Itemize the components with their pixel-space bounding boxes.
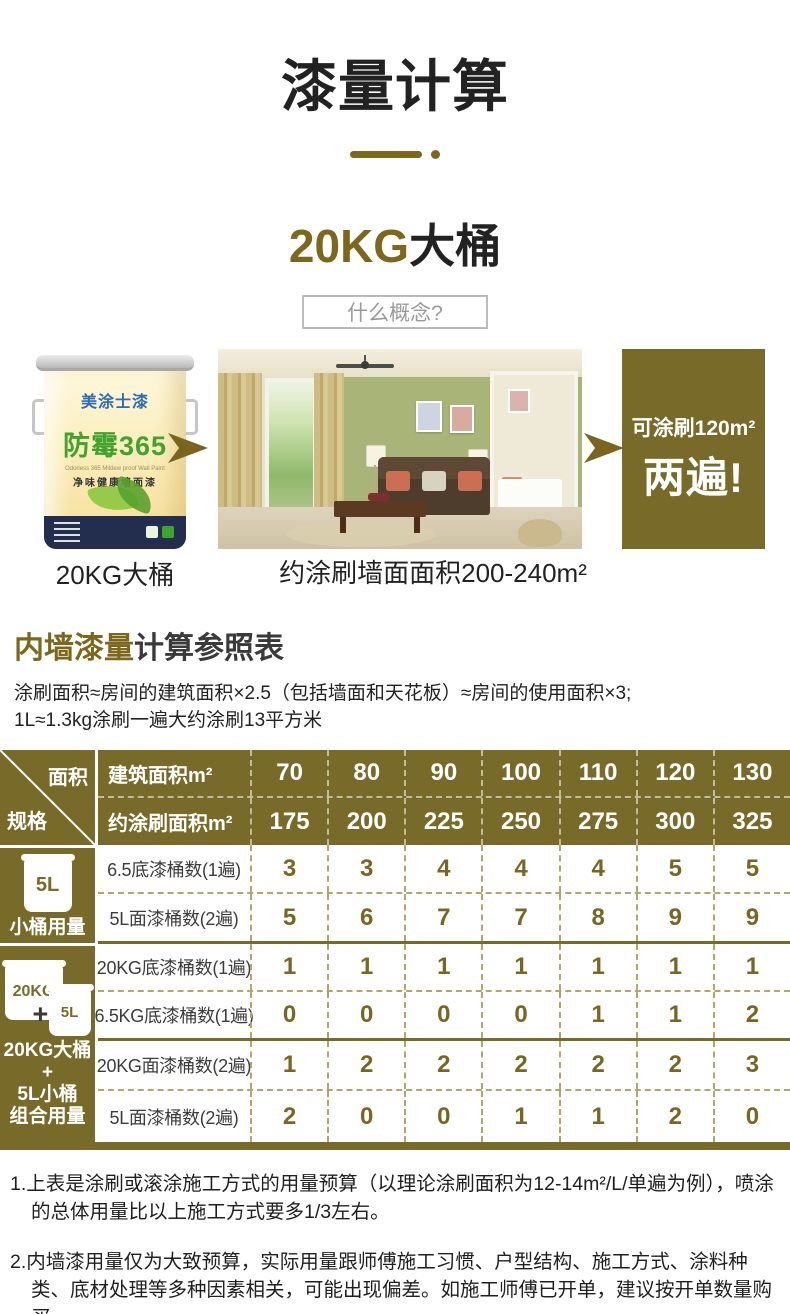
wall-picture — [508, 389, 530, 413]
cell: 110 — [559, 750, 636, 796]
divider-dot — [431, 150, 440, 159]
bucket-caption: 20KG大桶 — [30, 555, 200, 592]
cell: 100 — [481, 750, 558, 796]
curtain — [314, 373, 344, 515]
subtitle-rest: 大桶 — [409, 220, 501, 272]
cell: 1 — [713, 944, 790, 990]
cell: 300 — [636, 798, 713, 845]
cell: 1 — [636, 944, 713, 990]
group-name-line: 组合用量 — [9, 1106, 85, 1128]
cell: 2 — [636, 1041, 713, 1089]
cell: 1 — [481, 944, 558, 990]
cell: 0 — [404, 992, 481, 1038]
subtitle: 20KG大桶 — [0, 210, 790, 276]
row-label: 6.5底漆桶数(1遍) — [98, 845, 250, 892]
cell: 1 — [481, 1091, 558, 1142]
cell: 5 — [250, 894, 327, 941]
cell: 3 — [713, 1041, 790, 1089]
table-left-column: 面积 规格 5L 小桶用量 20KG 5L + 20KG大桶 + 5L小桶 组合… — [0, 750, 95, 1142]
table-bottom-bar — [0, 1142, 790, 1150]
wall-picture — [416, 401, 442, 432]
bucket-body: 美涂士漆 防霉365 Odorless 365 Mildew proof Wal… — [44, 364, 186, 549]
row-label: 5L面漆桶数(2遍) — [98, 1091, 250, 1142]
band-line — [54, 522, 80, 524]
bucket-5l-icon: 5L — [24, 858, 72, 912]
cell: 90 — [404, 750, 481, 796]
cell: 1 — [559, 992, 636, 1038]
cell: 5 — [636, 845, 713, 892]
cell: 2 — [250, 1091, 327, 1142]
table-body: 建筑面积m² 70 80 90 100 110 120 130 约涂刷面积m² … — [98, 750, 790, 1142]
coverage-flow: 美涂士漆 防霉365 Odorless 365 Mildew proof Wal… — [0, 341, 790, 593]
table-row-primer-6-5kg: 6.5KG底漆桶数(1遍) 0 0 0 0 1 1 2 — [98, 992, 790, 1041]
coffee-table-leg — [340, 517, 346, 533]
coverage-area-text: 可涂刷120m² — [632, 412, 756, 442]
band-line — [54, 528, 80, 530]
bucket-bottom-band — [44, 516, 186, 549]
bucket-brand: 美涂士漆 — [44, 388, 186, 412]
sofa-cushion — [422, 471, 446, 491]
subtitle-highlight: 20KG — [289, 220, 409, 272]
table-row-primer-6-5: 6.5底漆桶数(1遍) 3 3 4 4 4 5 5 — [98, 845, 790, 894]
cell: 1 — [559, 1091, 636, 1142]
curtain — [218, 373, 232, 515]
cell: 1 — [250, 1041, 327, 1089]
cell: 0 — [250, 992, 327, 1038]
eco-badge-icon — [162, 526, 174, 538]
divider-bar — [350, 151, 422, 158]
cell: 6 — [327, 894, 404, 941]
paint-calculation-page: 漆量计算 20KG大桶 什么概念? 美涂士漆 防霉365 Odorless 36… — [0, 0, 790, 1314]
footnote-1: 1.上表是涂刷或滚涂施工方式的用量预算（以理论涂刷面积为12-14m²/L/单遍… — [10, 1170, 776, 1226]
leaf-graphic — [44, 479, 186, 519]
section-description: 涂刷面积≈房间的建筑面积×2.5（包括墙面和天花板）≈房间的使用面积×3; 1L… — [14, 680, 790, 734]
plus-icon: + — [33, 1001, 49, 1028]
table-row-topcoat-5l: 5L面漆桶数(2遍) 5 6 7 7 8 9 9 — [98, 894, 790, 944]
room-photo — [218, 349, 582, 549]
bucket-lid — [36, 355, 194, 371]
table-corner-cell: 面积 规格 — [0, 750, 95, 845]
cell: 175 — [250, 798, 327, 845]
cell: 1 — [250, 944, 327, 990]
cell: 1 — [559, 944, 636, 990]
table-row-paint-area: 约涂刷面积m² 175 200 225 250 275 300 325 — [98, 798, 790, 845]
corner-label-spec: 规格 — [7, 805, 47, 834]
section-title-rest: 计算参照表 — [134, 632, 284, 665]
title-divider — [350, 150, 440, 160]
cell: 225 — [404, 798, 481, 845]
group-header-small-bucket: 5L 小桶用量 — [0, 848, 95, 943]
table-decor — [368, 493, 390, 501]
table-row-primer-20kg: 20KG底漆桶数(1遍) 1 1 1 1 1 1 1 — [98, 944, 790, 992]
eco-badge-icon — [146, 526, 158, 538]
combo-bucket-icons: 20KG 5L + — [5, 960, 91, 1036]
footnote-2: 2.内墙漆用量仅为大致预算，实际用量跟师傅施工习惯、户型结构、施工方式、涂料种类… — [10, 1248, 776, 1314]
coverage-result-box: 可涂刷120m² 两遍! — [622, 349, 765, 549]
group-header-combo: 20KG 5L + 20KG大桶 + 5L小桶 组合用量 — [0, 946, 95, 1142]
cell: 4 — [559, 845, 636, 892]
desc-line-1: 涂刷面积≈房间的建筑面积×2.5（包括墙面和天花板）≈房间的使用面积×3; — [14, 680, 790, 707]
desc-line-2: 1L≈1.3kg涂刷一遍大约涂刷13平方米 — [14, 707, 790, 734]
row-label: 5L面漆桶数(2遍) — [98, 894, 250, 941]
cell: 325 — [713, 798, 790, 845]
coffee-table — [334, 501, 426, 517]
cell: 9 — [713, 894, 790, 941]
bedroom-doorway — [490, 371, 578, 525]
row-label: 20KG底漆桶数(1遍) — [98, 944, 250, 990]
sofa-cushion — [386, 471, 410, 491]
ceiling-fan-icon — [361, 361, 369, 369]
cell: 2 — [559, 1041, 636, 1089]
cell: 2 — [713, 992, 790, 1038]
row-label: 约涂刷面积m² — [98, 798, 250, 845]
band-line — [54, 540, 80, 542]
bucket-product-name: 防霉365 — [44, 424, 186, 463]
group-name-line: 20KG大桶 — [4, 1040, 92, 1062]
cell: 3 — [250, 845, 327, 892]
cell: 2 — [481, 1041, 558, 1089]
cell: 2 — [327, 1041, 404, 1089]
cell: 7 — [404, 894, 481, 941]
group-name-line: + — [42, 1062, 53, 1084]
concept-button[interactable]: 什么概念? — [302, 295, 488, 329]
cell: 3 — [327, 845, 404, 892]
cell: 0 — [327, 1091, 404, 1142]
cell: 4 — [481, 845, 558, 892]
band-line — [54, 534, 80, 536]
group-name: 小桶用量 — [9, 917, 85, 939]
section-title: 内墙漆量计算参照表 — [14, 623, 790, 667]
cell: 8 — [559, 894, 636, 941]
group-name-line: 5L小桶 — [17, 1084, 77, 1106]
cell: 0 — [327, 992, 404, 1038]
room-caption: 约涂刷墙面面积200-240m² — [218, 553, 648, 590]
table-row-topcoat-20kg: 20KG面漆桶数(2遍) 1 2 2 2 2 2 3 — [98, 1041, 790, 1091]
cell: 0 — [404, 1091, 481, 1142]
table-row-building-area: 建筑面积m² 70 80 90 100 110 120 130 — [98, 750, 790, 798]
row-label: 20KG面漆桶数(2遍) — [98, 1041, 250, 1089]
cell: 9 — [636, 894, 713, 941]
cell: 1 — [636, 992, 713, 1038]
cell: 2 — [636, 1091, 713, 1142]
cell: 70 — [250, 750, 327, 796]
cell: 80 — [327, 750, 404, 796]
table-row-topcoat-5l-combo: 5L面漆桶数(2遍) 2 0 0 1 1 2 0 — [98, 1091, 790, 1142]
corner-label-area: 面积 — [48, 761, 88, 790]
cell: 5 — [713, 845, 790, 892]
reference-table: 面积 规格 5L 小桶用量 20KG 5L + 20KG大桶 + 5L小桶 组合… — [0, 750, 790, 1142]
bucket-5l-icon: 5L — [49, 988, 91, 1036]
arrow-right-icon — [584, 433, 624, 463]
cell: 120 — [636, 750, 713, 796]
row-label: 6.5KG底漆桶数(1遍) — [98, 992, 250, 1038]
cell: 130 — [713, 750, 790, 796]
cell: 7 — [481, 894, 558, 941]
cell: 2 — [404, 1041, 481, 1089]
cell: 4 — [404, 845, 481, 892]
bucket-product-en: Odorless 365 Mildew proof Wall Paint — [44, 466, 186, 472]
row-label: 建筑面积m² — [98, 750, 250, 796]
sofa-cushion — [458, 471, 482, 491]
coverage-coats-text: 两遍! — [643, 444, 744, 505]
wall-picture — [450, 405, 474, 433]
cell: 1 — [327, 944, 404, 990]
cell: 0 — [481, 992, 558, 1038]
section-title-highlight: 内墙漆量 — [14, 632, 134, 665]
cell: 200 — [327, 798, 404, 845]
page-title: 漆量计算 — [0, 0, 790, 123]
patio-door — [262, 375, 320, 523]
cell: 250 — [481, 798, 558, 845]
footnotes: 1.上表是涂刷或滚涂施工方式的用量预算（以理论涂刷面积为12-14m²/L/单遍… — [10, 1170, 776, 1314]
coffee-table-leg — [414, 517, 420, 533]
cell: 0 — [713, 1091, 790, 1142]
arrow-right-icon — [168, 433, 208, 463]
cell: 275 — [559, 798, 636, 845]
cell: 1 — [404, 944, 481, 990]
pouf — [518, 519, 562, 547]
curtain — [232, 373, 262, 515]
door-glass — [269, 382, 313, 516]
